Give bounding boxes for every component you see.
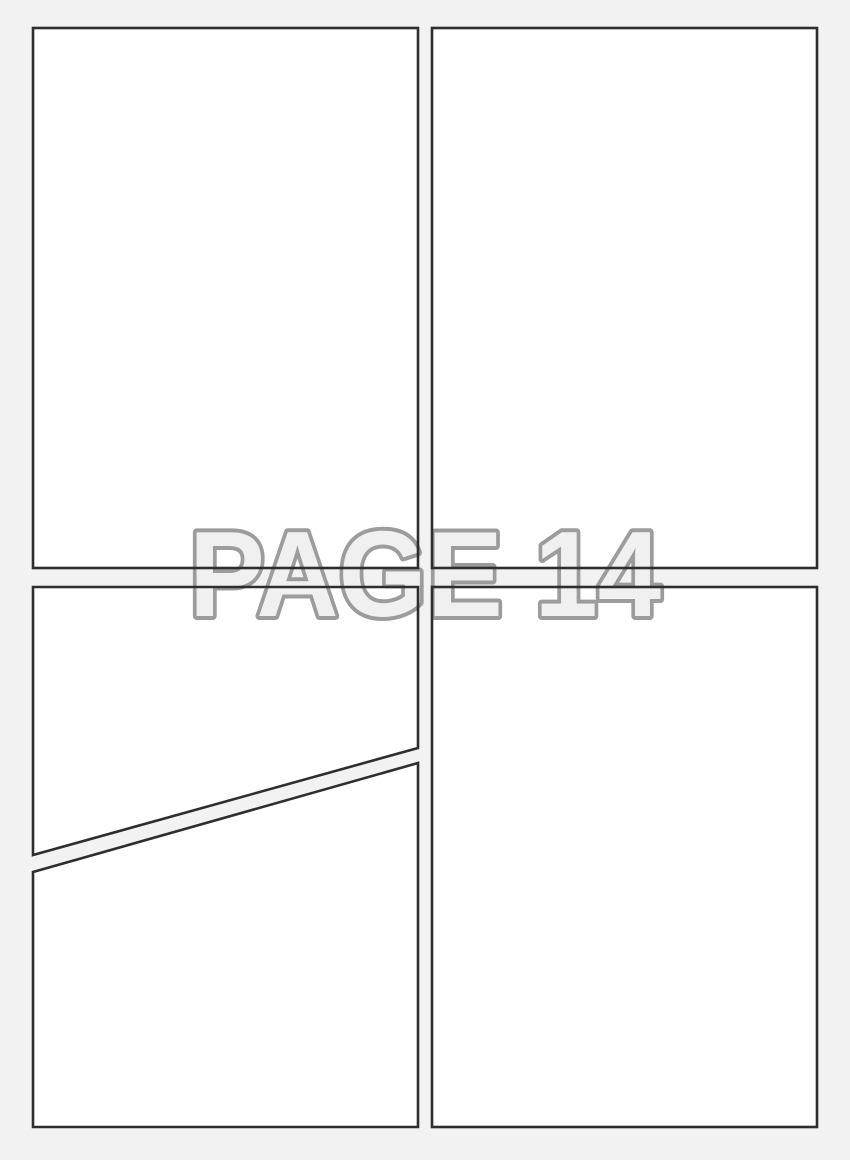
panel-1-top-left-fill (33, 28, 418, 568)
comic-page-template: PAGE 14 (0, 0, 850, 1160)
panel-5-bottom-right-fill (432, 587, 817, 1127)
comic-page-canvas: PAGE 14 (0, 0, 850, 1160)
panel-2-top-right-fill (432, 28, 817, 568)
page-number-watermark: PAGE 14 (189, 506, 661, 642)
